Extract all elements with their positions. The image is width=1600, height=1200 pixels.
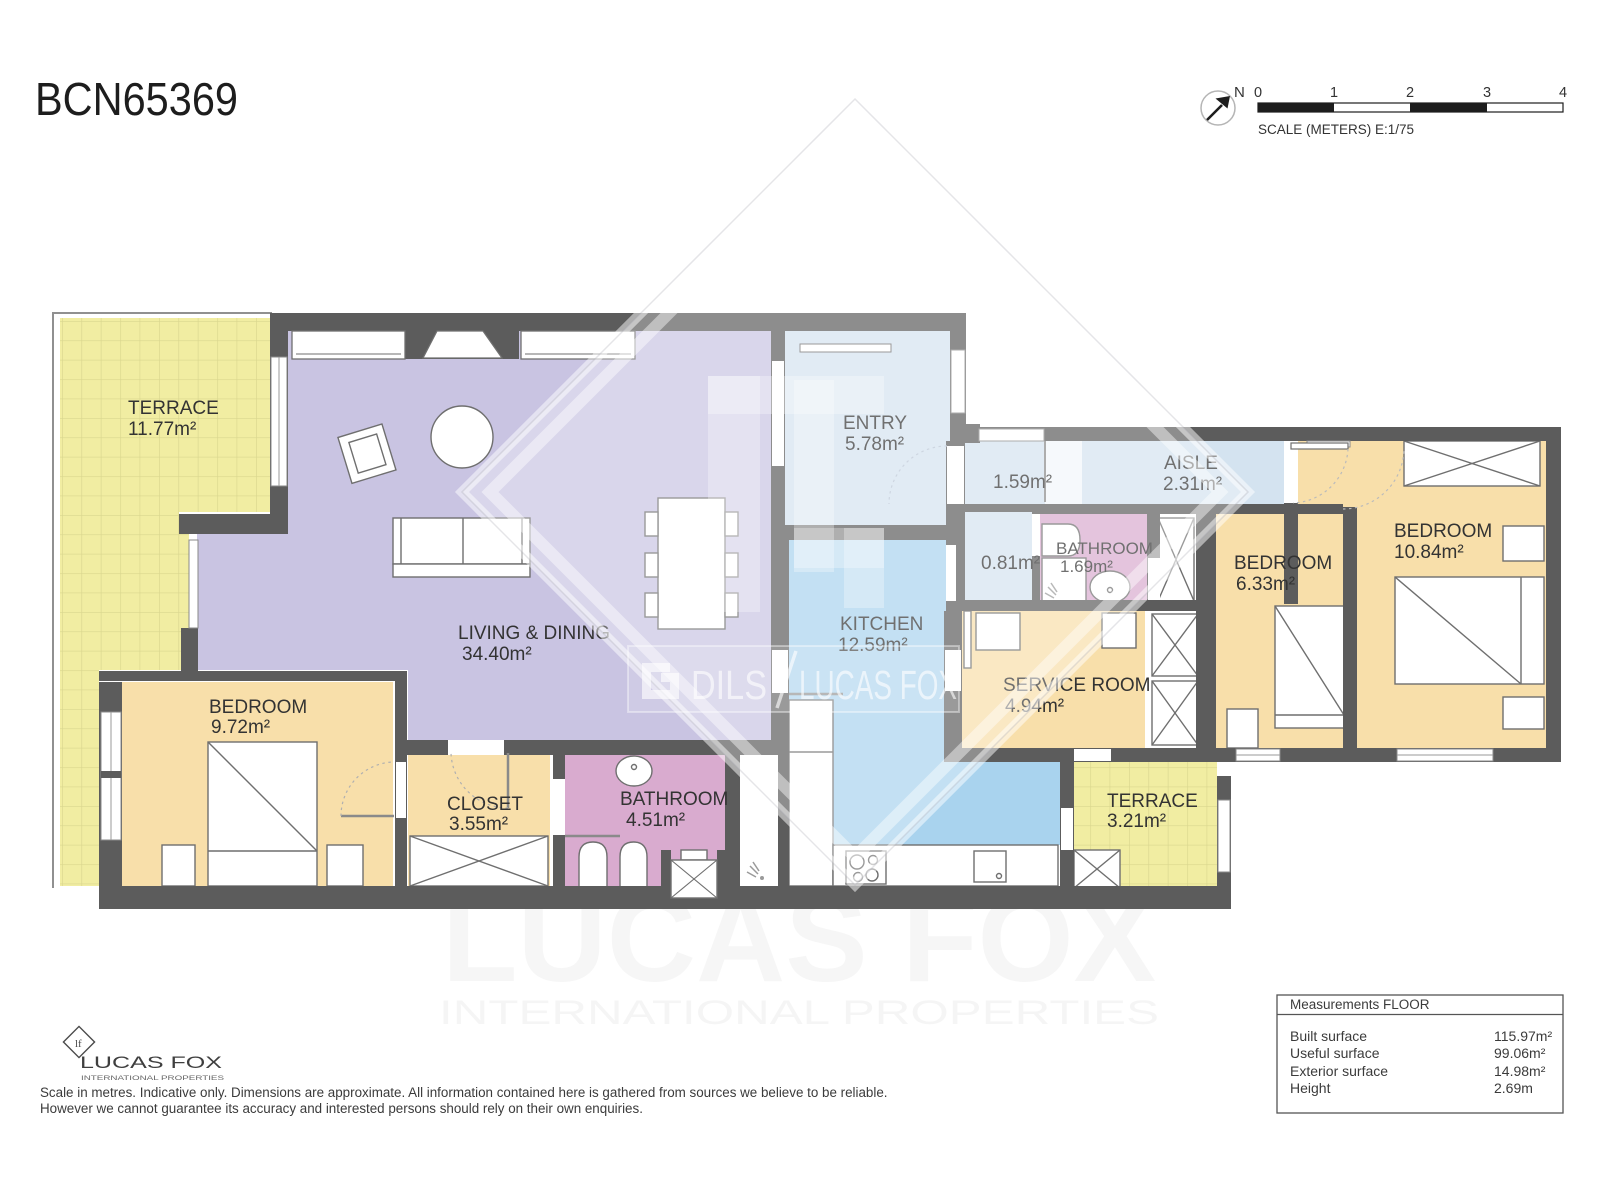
svg-text:TERRACE: TERRACE [1107,791,1198,812]
svg-text:LUCAS FOX: LUCAS FOX [80,1054,222,1072]
svg-text:SCALE (METERS) E:1/75: SCALE (METERS) E:1/75 [1258,122,1414,137]
svg-text:14.98m²: 14.98m² [1494,1063,1546,1079]
svg-text:6.33m²: 6.33m² [1236,574,1295,595]
svg-text:INTERNATIONAL PROPERTIES: INTERNATIONAL PROPERTIES [439,994,1159,1032]
svg-text:9.72m²: 9.72m² [211,717,270,738]
svg-text:1: 1 [1330,85,1338,101]
svg-text:115.97m²: 115.97m² [1494,1028,1552,1044]
svg-text:LUCAS FOX: LUCAS FOX [799,662,957,708]
svg-text:lf: lf [75,1038,82,1050]
svg-text:4: 4 [1559,85,1567,101]
svg-text:0: 0 [1254,85,1262,101]
svg-text:3.21m²: 3.21m² [1107,811,1166,832]
svg-text:10.84m²: 10.84m² [1394,542,1464,563]
svg-text:Height: Height [1290,1080,1331,1096]
svg-text:2: 2 [1406,85,1414,101]
svg-text:INTERNATIONAL PROPERTIES: INTERNATIONAL PROPERTIES [81,1075,225,1082]
svg-text:BCN65369: BCN65369 [35,73,238,125]
svg-text:CLOSET: CLOSET [447,794,523,815]
svg-text:Built surface: Built surface [1290,1028,1367,1044]
svg-text:Measurements FLOOR: Measurements FLOOR [1290,997,1430,1012]
svg-text:BEDROOM: BEDROOM [1234,553,1332,574]
svg-text:3: 3 [1483,85,1491,101]
svg-text:DILS: DILS [691,662,767,708]
svg-text:BATHROOM: BATHROOM [620,789,728,810]
svg-text:2.69m: 2.69m [1494,1080,1533,1096]
svg-text:Exterior surface: Exterior surface [1290,1063,1388,1079]
svg-text:Scale in metres. Indicative on: Scale in metres. Indicative only. Dimens… [40,1085,888,1100]
svg-text:LIVING & DINING: LIVING & DINING [458,623,610,644]
svg-text:4.51m²: 4.51m² [626,810,685,831]
svg-text:11.77m²: 11.77m² [128,419,196,440]
svg-text:BEDROOM: BEDROOM [209,697,307,718]
svg-text:TERRACE: TERRACE [128,398,219,419]
svg-text:However we cannot guarantee it: However we cannot guarantee its accuracy… [40,1101,643,1116]
svg-text:99.06m²: 99.06m² [1494,1045,1546,1061]
svg-text:34.40m²: 34.40m² [462,644,532,665]
svg-text:3.55m²: 3.55m² [449,814,508,835]
svg-text:BEDROOM: BEDROOM [1394,521,1492,542]
svg-text:N: N [1234,84,1245,101]
svg-text:Useful surface: Useful surface [1290,1045,1380,1061]
